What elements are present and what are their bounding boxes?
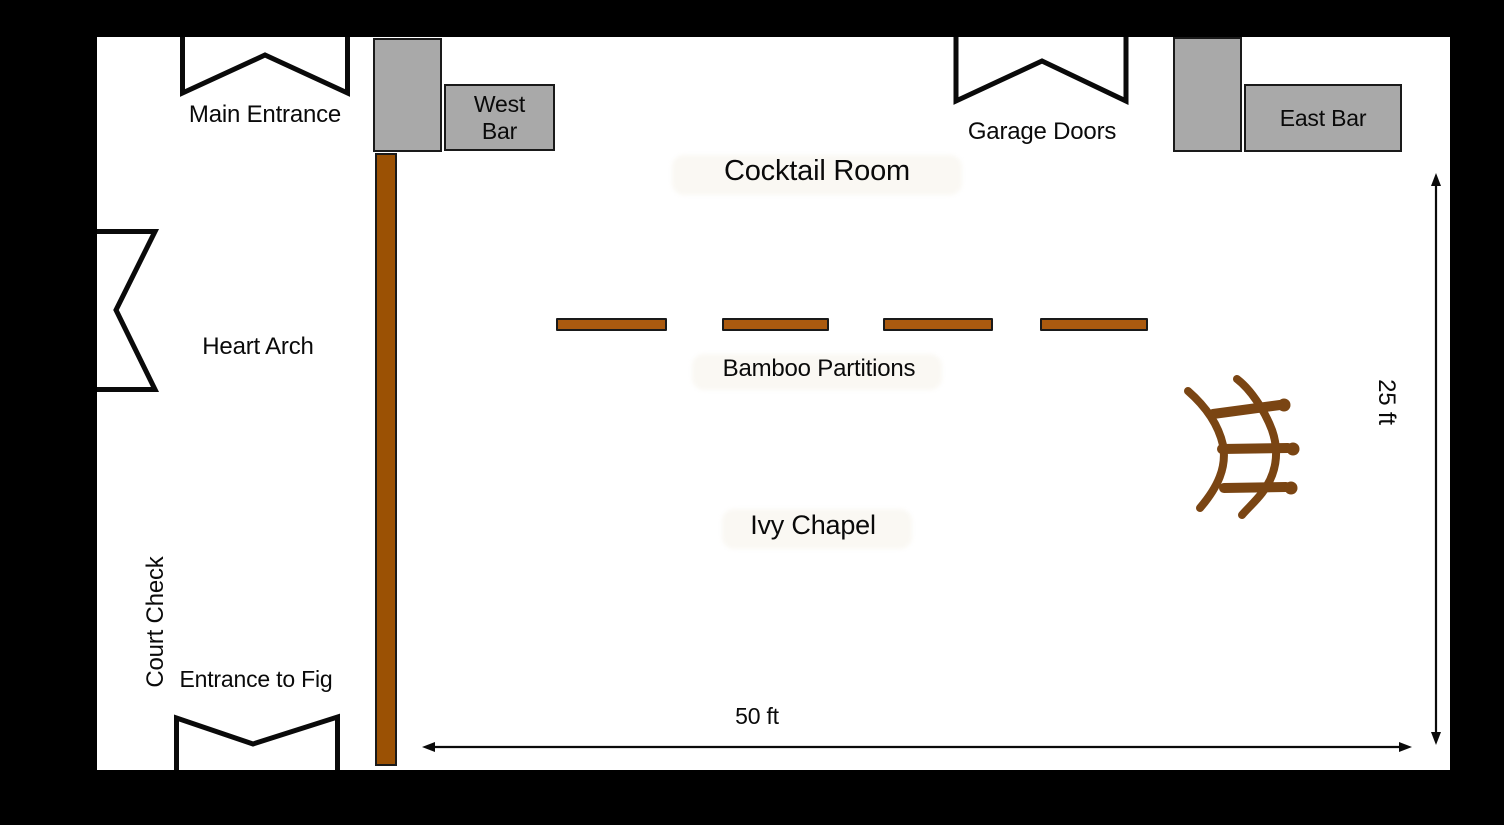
bamboo-partitions-label: Bamboo Partitions — [669, 355, 969, 383]
heart-arch-icon — [97, 229, 161, 397]
floor-plan-canvas: Main Entrance West Bar Cocktail Room Gar… — [97, 37, 1450, 770]
bamboo-partition-3 — [883, 318, 993, 331]
east-bar-label: East Bar — [1280, 105, 1367, 132]
garage-doors-label: Garage Doors — [942, 118, 1142, 146]
main-entrance-door-icon — [180, 37, 350, 99]
garage-doors-icon — [953, 37, 1129, 105]
west-bar-label: West Bar — [468, 91, 532, 145]
entrance-to-fig-label: Entrance to Fig — [156, 666, 356, 692]
ivy-chapel-label: Ivy Chapel — [663, 510, 963, 541]
height-dimension-arrow — [1428, 173, 1444, 745]
cocktail-room-label: Cocktail Room — [642, 155, 992, 188]
east-bar: East Bar — [1244, 84, 1402, 152]
fig-entrance-door-icon — [174, 716, 340, 772]
main-entrance-label: Main Entrance — [180, 101, 350, 129]
west-bar-pillar — [373, 38, 442, 152]
bamboo-partition-4 — [1040, 318, 1148, 331]
heart-arch-label: Heart Arch — [158, 333, 358, 361]
bamboo-partition-2 — [722, 318, 829, 331]
west-bar: West Bar — [444, 84, 555, 151]
bamboo-arch-sketch-icon — [1180, 375, 1305, 525]
east-bar-pillar — [1173, 37, 1242, 152]
floor-plan-image: Main Entrance West Bar Cocktail Room Gar… — [0, 0, 1504, 825]
width-dimension-arrow — [422, 739, 1412, 755]
dividing-wall — [375, 153, 397, 766]
room-width-label: 50 ft — [657, 703, 857, 729]
room-height-label: 25 ft — [1372, 367, 1400, 437]
bamboo-partition-1 — [556, 318, 667, 331]
